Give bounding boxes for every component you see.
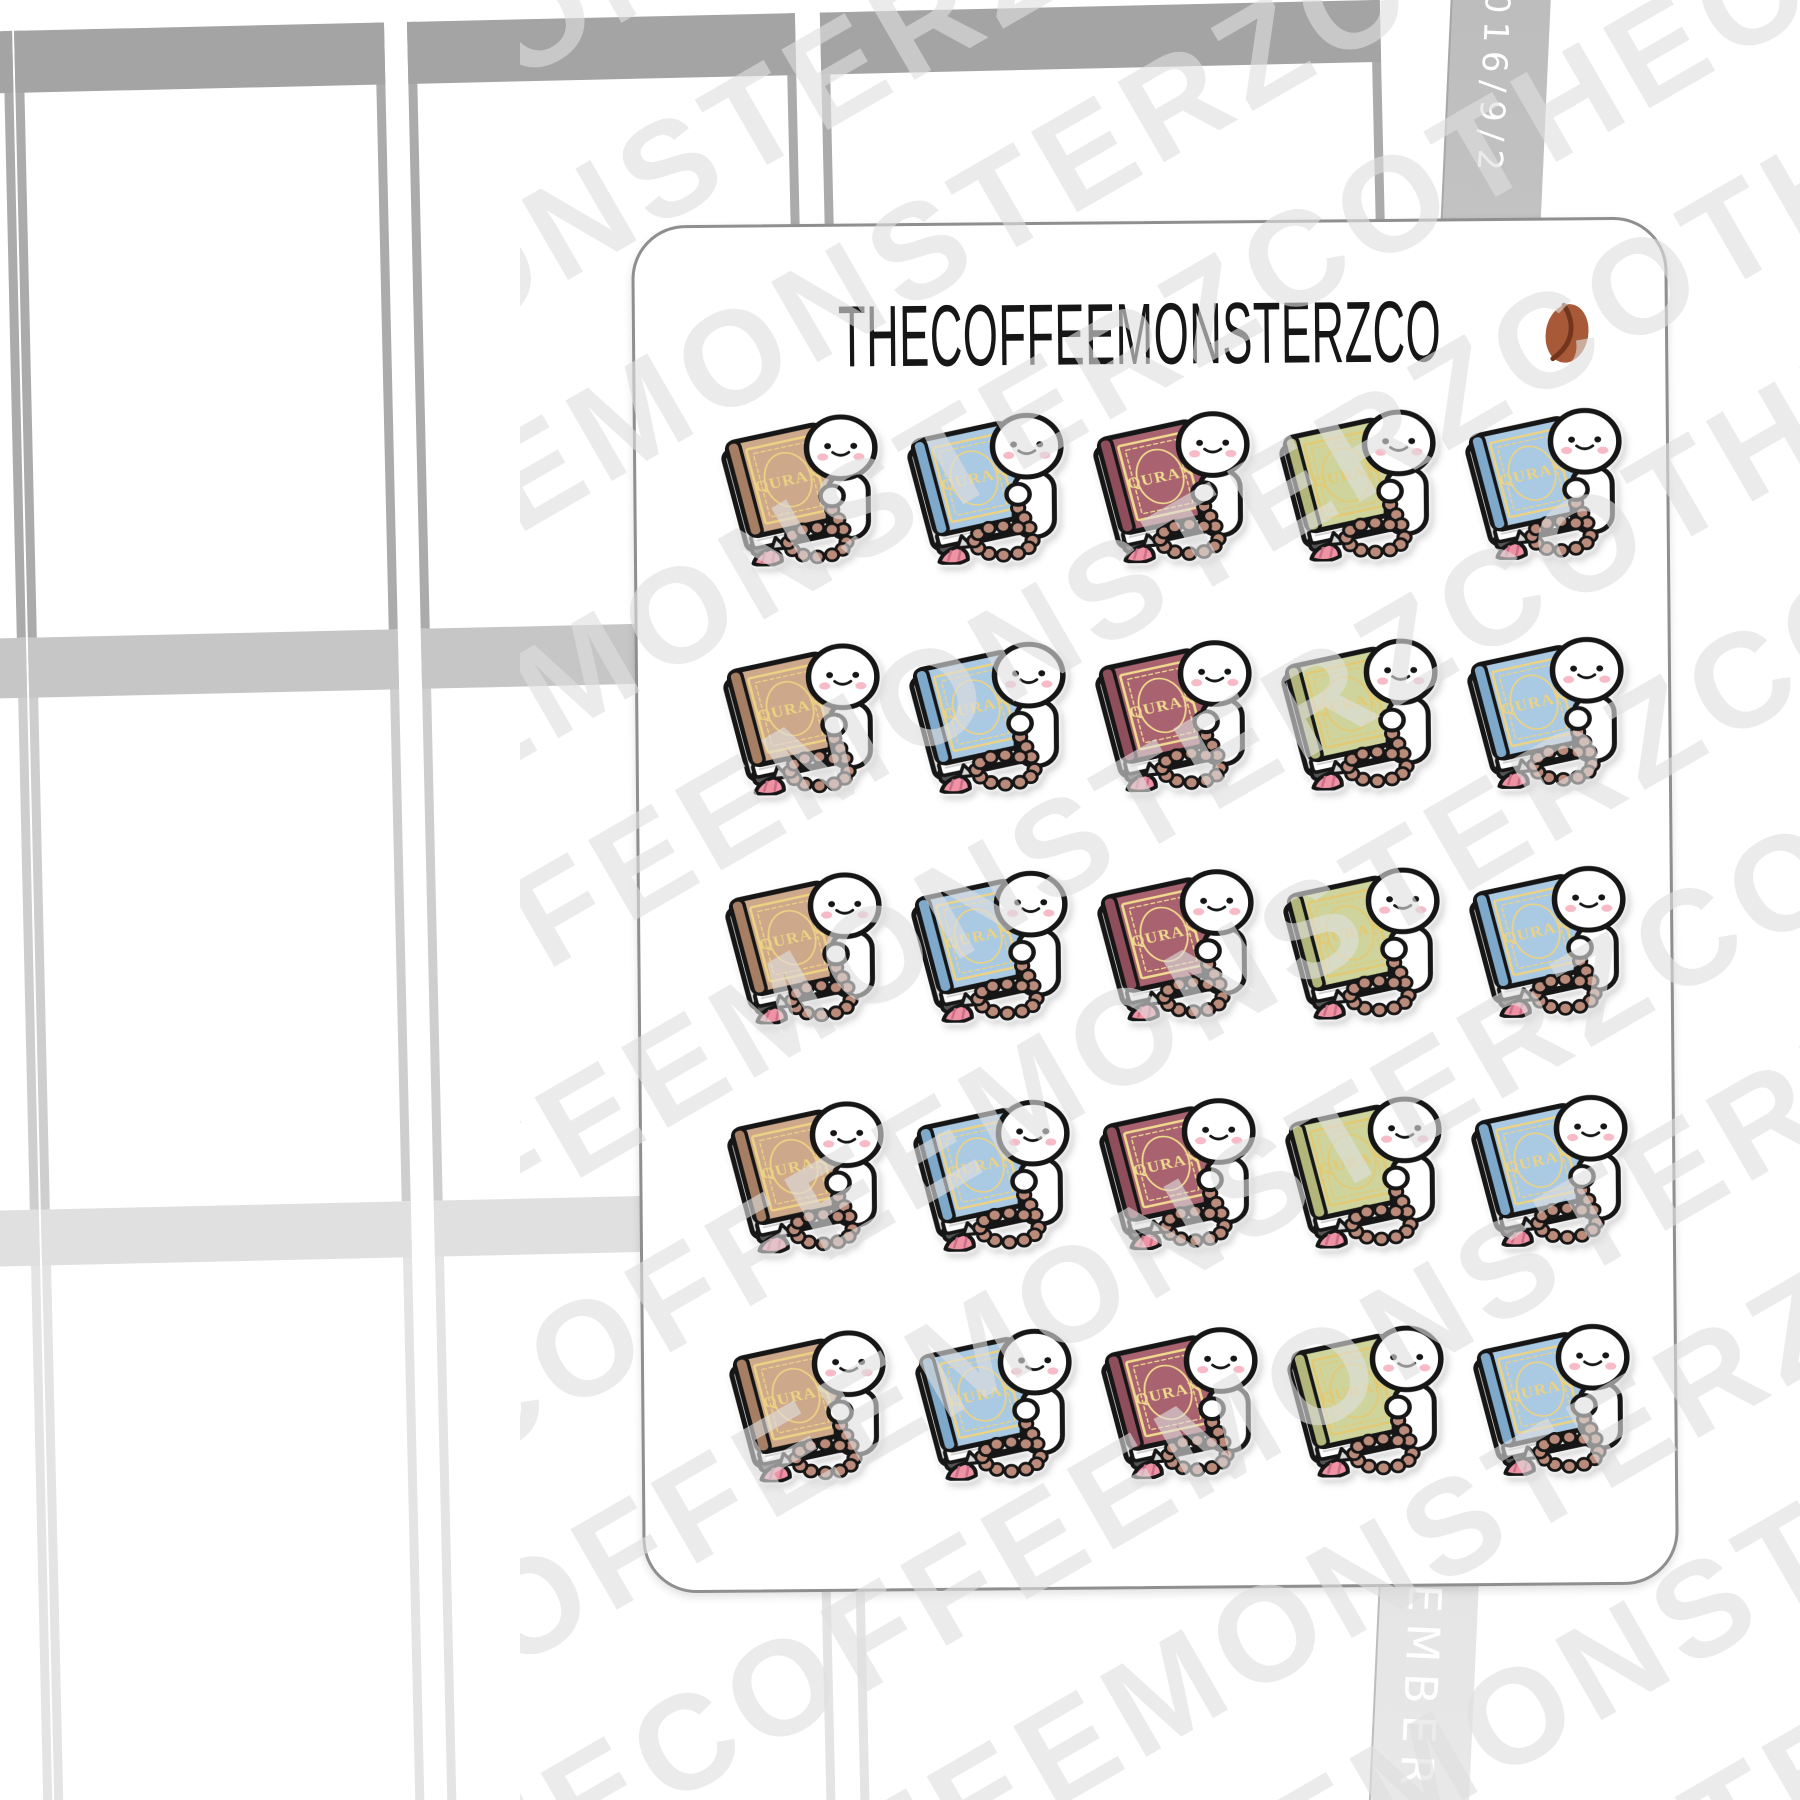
quran-sticker (1471, 1319, 1648, 1477)
quran-sticker-art (719, 409, 896, 567)
quran-sticker-art (1277, 404, 1454, 562)
quran-sticker-art (1281, 862, 1458, 1020)
sticker-sheet: THECOFFEEMONSTERZCO (631, 217, 1679, 1594)
quran-sticker-art (723, 867, 900, 1025)
quran-sticker-art (911, 1095, 1088, 1253)
quran-sticker-art (909, 866, 1086, 1024)
quran-sticker-art (1465, 632, 1642, 790)
quran-sticker (911, 1095, 1088, 1253)
quran-sticker-art (913, 1324, 1090, 1482)
quran-sticker (1281, 862, 1458, 1020)
quran-sticker-art (1097, 1093, 1274, 1251)
product-photo: 2016/9/2 SEPTEMBER THECOFFEEMONSTERZCO T… (0, 0, 1800, 1800)
planner-box-header (28, 629, 399, 697)
quran-sticker-art (1091, 406, 1268, 564)
quran-sticker (1463, 403, 1640, 561)
quran-sticker (907, 637, 1084, 795)
quran-sticker (905, 408, 1082, 566)
quran-sticker (1099, 1322, 1276, 1480)
quran-sticker (723, 867, 900, 1025)
quran-sticker-art (1095, 864, 1272, 1022)
quran-sticker (725, 1096, 902, 1254)
planner-box (14, 22, 398, 637)
planner-box (28, 629, 411, 1209)
quran-sticker-art (1469, 1090, 1646, 1248)
quran-sticker (1095, 864, 1272, 1022)
quran-sticker-art (1279, 633, 1456, 791)
quran-sticker (719, 409, 896, 567)
quran-sticker-art (1471, 1319, 1648, 1477)
quran-sticker-art (1285, 1320, 1462, 1478)
planner-box (41, 1201, 428, 1800)
sticker-grid (634, 220, 1676, 1591)
date-tab-year-text: 2016/9/2 (1469, 0, 1519, 179)
quran-sticker (1467, 861, 1644, 1019)
quran-sticker (909, 866, 1086, 1024)
planner-box-header (407, 13, 796, 84)
quran-sticker (1279, 633, 1456, 791)
quran-sticker-art (1463, 403, 1640, 561)
planner-box-header (41, 1201, 412, 1265)
quran-sticker (1277, 404, 1454, 562)
planner-box-header (0, 31, 13, 98)
quran-sticker (1093, 635, 1270, 793)
quran-sticker (721, 638, 898, 796)
quran-sticker-art (1467, 861, 1644, 1019)
quran-sticker-art (1093, 635, 1270, 793)
planner-box-header (0, 638, 27, 703)
quran-sticker (1097, 1093, 1274, 1251)
quran-sticker-art (907, 637, 1084, 795)
planner-box-header (14, 22, 385, 92)
quran-sticker-art (725, 1096, 902, 1254)
quran-sticker (1285, 1320, 1462, 1478)
quran-sticker (1469, 1090, 1646, 1248)
quran-sticker (1465, 632, 1642, 790)
quran-sticker-art (1099, 1322, 1276, 1480)
quran-sticker-art (727, 1325, 904, 1483)
quran-sticker-art (1283, 1091, 1460, 1249)
quran-sticker (913, 1324, 1090, 1482)
quran-sticker-art (721, 638, 898, 796)
quran-sticker-art (905, 408, 1082, 566)
planner-box-header (0, 1210, 40, 1271)
planner-box-header (820, 0, 1381, 75)
quran-sticker (727, 1325, 904, 1483)
quran-sticker (1091, 406, 1268, 564)
quran-sticker (1283, 1091, 1460, 1249)
